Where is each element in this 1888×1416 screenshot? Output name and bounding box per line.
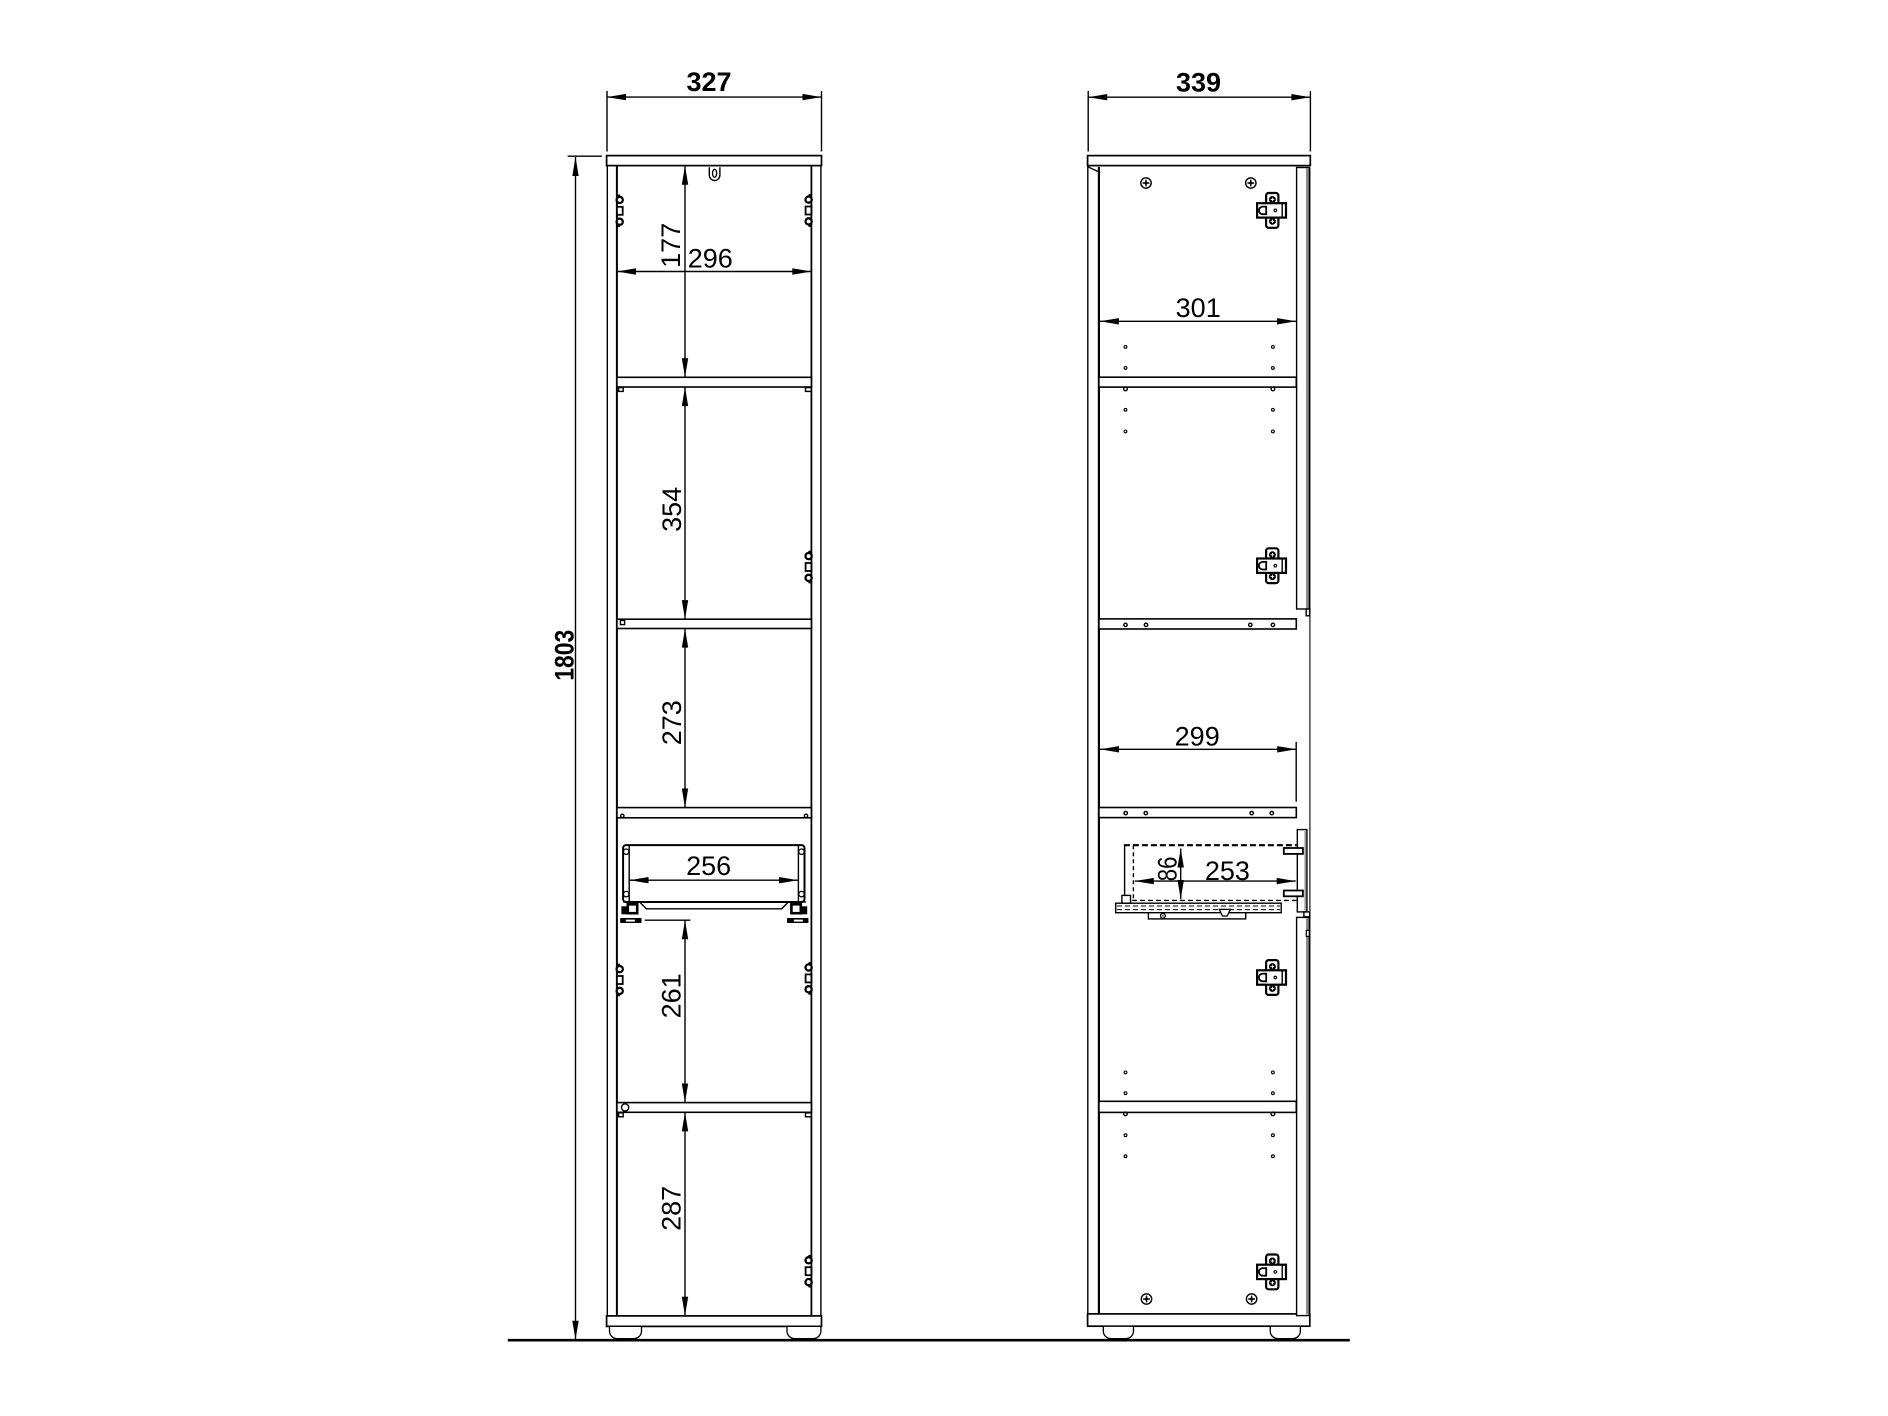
svg-text:256: 256 <box>686 851 731 881</box>
svg-text:296: 296 <box>688 244 733 274</box>
svg-text:327: 327 <box>686 67 731 97</box>
svg-text:1803: 1803 <box>550 630 580 681</box>
svg-text:273: 273 <box>657 700 687 745</box>
svg-text:253: 253 <box>1205 856 1250 886</box>
svg-text:287: 287 <box>656 1186 686 1231</box>
svg-text:339: 339 <box>1176 67 1221 97</box>
svg-text:86: 86 <box>1154 857 1184 882</box>
svg-text:299: 299 <box>1175 722 1220 752</box>
svg-text:177: 177 <box>656 223 686 268</box>
svg-text:301: 301 <box>1176 293 1221 323</box>
svg-text:354: 354 <box>657 487 687 532</box>
svg-text:261: 261 <box>656 973 686 1018</box>
